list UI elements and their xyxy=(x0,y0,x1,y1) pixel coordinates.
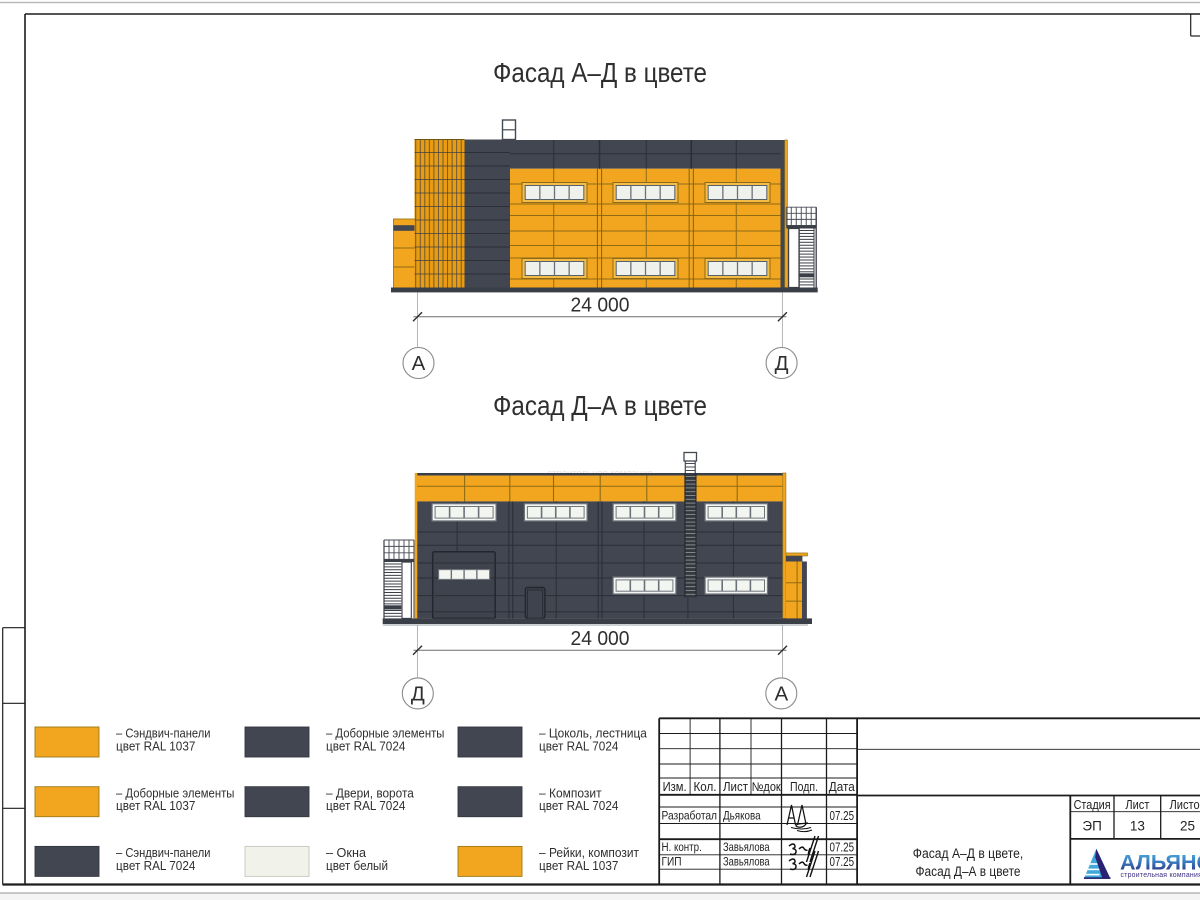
svg-text:Фасад А–Д в цвете: Фасад А–Д в цвете xyxy=(493,57,707,88)
svg-text:цвет RAL 7024: цвет RAL 7024 xyxy=(326,798,405,813)
svg-text:цвет RAL 1037: цвет RAL 1037 xyxy=(116,738,195,753)
svg-text:Дьякова: Дьякова xyxy=(723,809,761,823)
svg-text:Фасад Д–А в цвете: Фасад Д–А в цвете xyxy=(493,390,707,421)
svg-text:цвет RAL 1037: цвет RAL 1037 xyxy=(116,798,195,813)
svg-text:А: А xyxy=(774,683,788,706)
svg-text:Н. контр.: Н. контр. xyxy=(662,840,702,854)
svg-text:цвет RAL 7024: цвет RAL 7024 xyxy=(326,738,405,753)
svg-text:Кол.: Кол. xyxy=(694,780,717,794)
svg-text:Лист: Лист xyxy=(723,780,748,794)
svg-text:Дата: Дата xyxy=(829,780,855,794)
svg-text:Листов: Листов xyxy=(1170,798,1200,812)
svg-text:ЭП: ЭП xyxy=(1082,819,1101,834)
svg-text:Подп.: Подп. xyxy=(790,780,818,794)
svg-text:07.25: 07.25 xyxy=(830,840,855,855)
svg-text:25: 25 xyxy=(1180,819,1195,834)
svg-text:Разработал: Разработал xyxy=(662,809,718,823)
svg-text:цвет RAL 1037: цвет RAL 1037 xyxy=(539,858,618,873)
svg-text:цвет RAL 7024: цвет RAL 7024 xyxy=(539,738,618,753)
svg-text:цвет RAL 7024: цвет RAL 7024 xyxy=(539,798,618,813)
svg-text:Завьялова: Завьялова xyxy=(723,840,770,854)
svg-text:строительная компания: строительная компания xyxy=(1121,872,1200,879)
svg-text:Фасад А–Д в цвете,: Фасад А–Д в цвете, xyxy=(913,846,1024,861)
svg-text:№док: №док xyxy=(752,780,781,794)
svg-text:А: А xyxy=(412,352,426,375)
svg-text:Фасад Д–А в цвете: Фасад Д–А в цвете xyxy=(916,864,1021,879)
svg-text:Лист: Лист xyxy=(1125,798,1149,812)
svg-text:Завьялова: Завьялова xyxy=(723,855,770,869)
svg-text:цвет белый: цвет белый xyxy=(326,858,388,873)
svg-text:ГИП: ГИП xyxy=(662,855,682,869)
svg-text:Изм.: Изм. xyxy=(663,780,687,794)
svg-text:Стадия: Стадия xyxy=(1074,798,1111,812)
svg-text:24 000: 24 000 xyxy=(571,627,630,650)
svg-text:цвет RAL 7024: цвет RAL 7024 xyxy=(116,858,195,873)
svg-text:07.25: 07.25 xyxy=(830,808,855,823)
svg-text:Д: Д xyxy=(411,683,425,706)
svg-text:24 000: 24 000 xyxy=(571,294,630,317)
svg-text:13: 13 xyxy=(1130,819,1145,834)
svg-text:Д: Д xyxy=(775,352,789,375)
svg-text:07.25: 07.25 xyxy=(830,854,855,869)
